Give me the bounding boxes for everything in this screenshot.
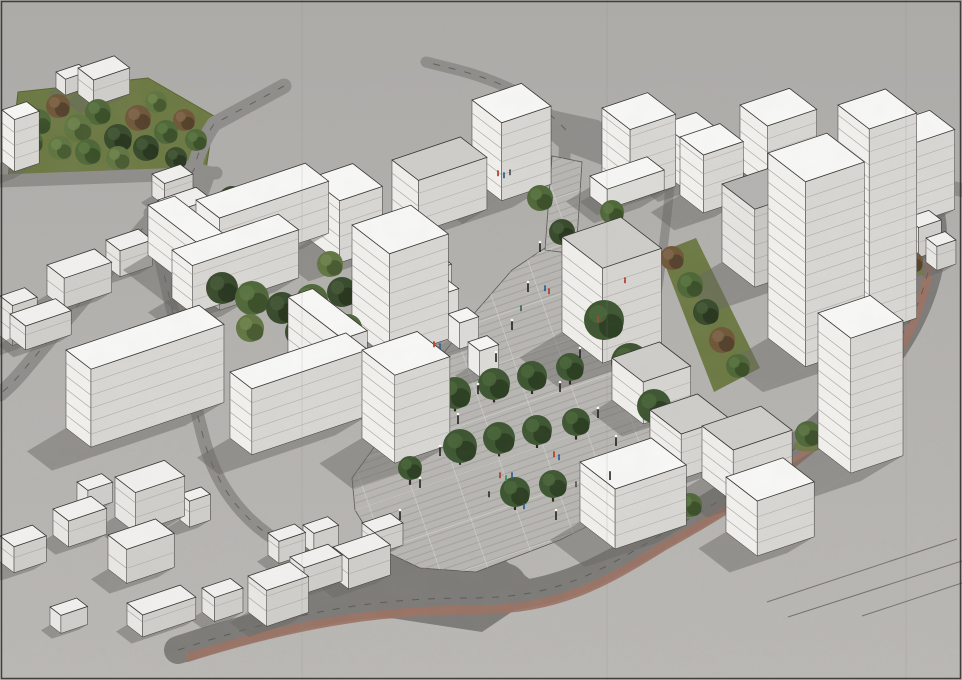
render-canvas (0, 0, 962, 680)
concrete-texture (0, 0, 962, 680)
masterplan-3d-render: Aerial axonometric 3D massing render of … (0, 0, 962, 680)
texture-frame-layer (0, 0, 962, 680)
